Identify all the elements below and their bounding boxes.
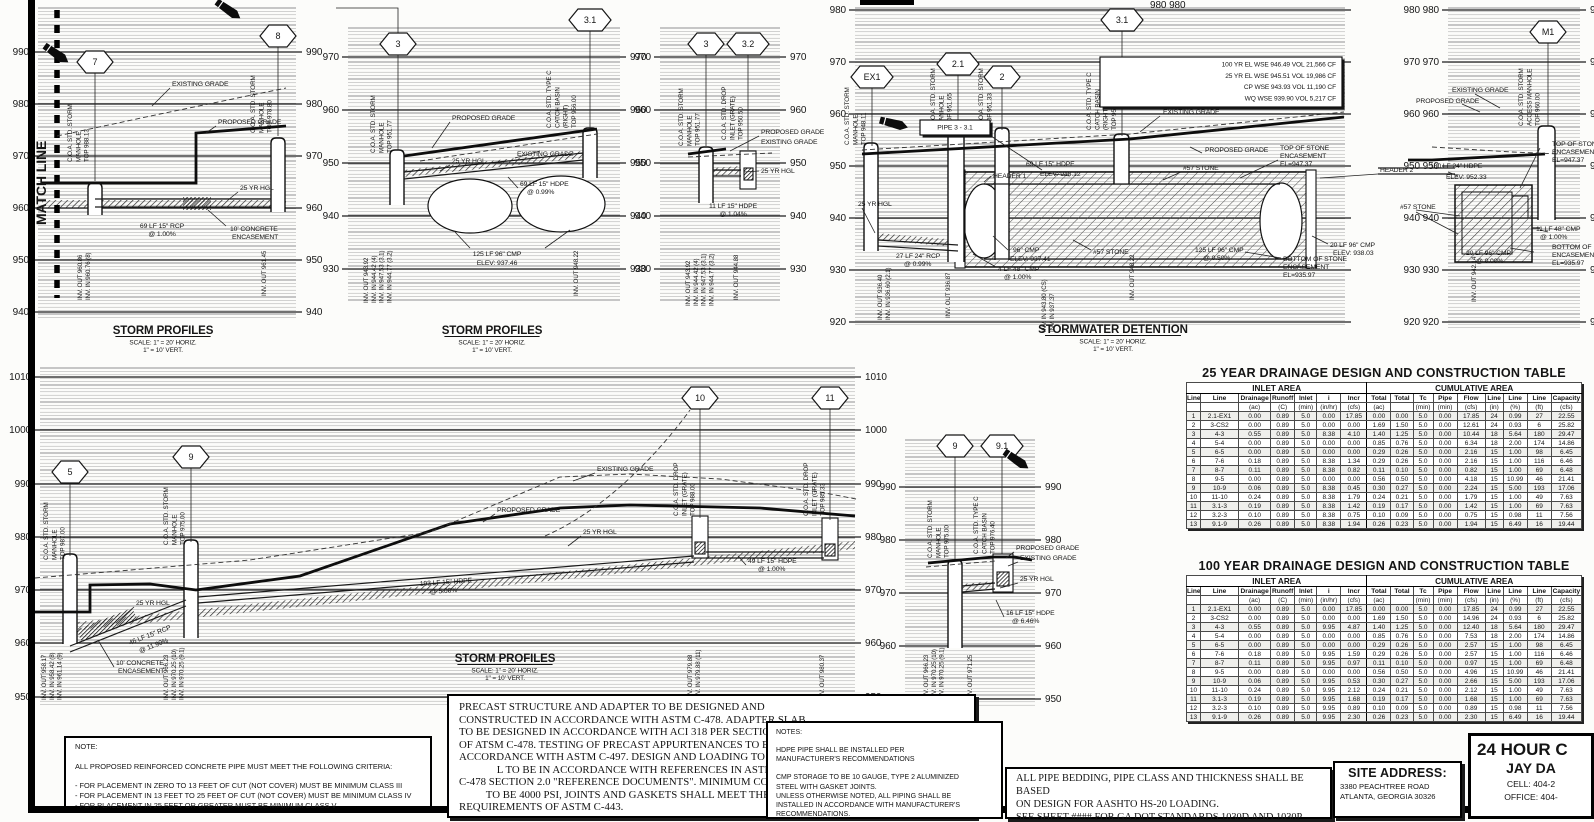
table-row: 78-70.110.895.08.380.820.110.105.00.000.… [1187,466,1582,475]
structure-barrel [390,150,404,205]
structure-callout: TOP 976.40 [990,521,997,554]
annotation-label: 96" CMP [1013,247,1040,254]
annotation-label: 25 YR HGL [858,201,892,208]
structure-bubble-label: 11 [825,393,834,403]
table-row: 89-50.000.895.00.000.000.560.505.00.004.… [1187,668,1582,677]
structure-callout: TOP 960.00 [1535,93,1542,126]
structure-bubble-label: 7 [93,57,98,67]
structure-callout: TOP 956.00 [571,95,578,128]
invert-label: INV. IN 944.42 (4) [693,258,700,306]
invert-label: INV. OUT 960.86 [77,254,84,300]
invert-label: INV. OUT 943.92 [363,257,370,303]
table-row: 123.2-30.100.895.08.380.750.100.095.00.0… [1187,511,1582,520]
site-address-title: SITE ADDRESS: [1340,766,1455,780]
annotation-label: PROPOSED GRADE [761,129,825,136]
elevation-label: 930 [830,265,847,276]
profile-scale-note: SCALE: 1" = 20' HORIZ. [471,668,538,675]
table-row: 34-30.550.895.09.954.871.401.255.00.0012… [1187,623,1582,632]
drainage-table-25yr-title: 25 YEAR DRAINAGE DESIGN AND CONSTRUCTION… [1186,366,1582,380]
elevation-label: 970 [306,151,323,162]
annotation-label: ELEV: 938.03 [1333,250,1374,257]
elevation-label: 940 [635,211,652,222]
elevation-label: 960 [13,203,30,214]
note-rcp-box: NOTE: ALL PROPOSED REINFORCED CONCRETE P… [64,736,432,808]
annotation-label: 180 LF 24" HDPE [1430,163,1483,170]
annotation-label: 25 YR HGL [761,168,795,175]
elevation-label: 970 [13,151,30,162]
invert-label: INV. OUT 948.22 [573,250,580,296]
annotation-label: @ 1.00% [1540,234,1567,241]
cmp-pipe-end [1260,183,1302,259]
annotation-label: 4 LF 48" CMP [998,266,1040,273]
annotation-label: BOTTOM OF [1552,244,1591,251]
invert-label: INV. IN 960.76 (8) [85,252,92,300]
invert-label: INV. OUT 948.22 [1129,254,1136,300]
profile-title: STORM PROFILES [442,325,543,337]
annotation-label: PROPOSED GRADE [497,507,561,514]
invert-label: INV. IN 947.53 (3.1) [379,251,386,303]
annotation-label: EXISTING GRADE [517,151,574,158]
annotation-label: EXISTING GRADE [1163,109,1220,116]
elevation-label: 960 [790,105,807,116]
elevation-label: 960 960 [1404,109,1440,120]
table-row: 910-90.060.895.09.950.530.300.275.00.002… [1187,677,1582,686]
structure-bubble-label: M1 [1542,27,1554,37]
structure-callout: C.O.A. STD. STORM [678,88,685,146]
table-row: 12.1-EX10.000.895.00.0017.850.000.005.00… [1187,412,1582,421]
structure-barrel [948,560,962,648]
drawing-line [878,246,958,251]
annotation-label: 25 YR HGL [1020,576,1054,583]
invert-label: INV. IN 944.42 (4) [371,255,378,303]
table-row: 56-50.000.895.00.000.000.290.265.00.002.… [1187,448,1582,457]
invert-label: INV. OUT 936.40 [877,274,884,320]
structure-callout: C.O.A. STD. DROP [673,463,680,516]
structure-callout: C.O.A. STD. STORM [844,87,851,145]
elevation-label: 980 980 [1404,5,1440,16]
elevation-label: 930 [635,264,652,275]
annotation-label: @ 0.99% [904,261,931,268]
structure-bubble-label: EX1 [864,72,881,82]
structure-callout: INLET (GRATE) [681,472,688,516]
structure-callout: TOP 987.00 [60,527,67,560]
hdpe-notes-text: NOTES: HDPE PIPE SHALL BE INSTALLED PER … [776,728,993,819]
profile-title: STORMWATER DETENTION [1038,324,1188,336]
table-row: 34-30.550.895.08.384.101.401.255.00.0010… [1187,430,1582,439]
structure-bubble-label: 3.1 [584,15,596,25]
elevation-label: 920 [1590,317,1594,328]
structure-callout: C.O.A. STD. STORM [370,95,377,153]
annotation-label: #57 STONE [1183,165,1219,172]
structure-callout: MANHOLE [75,132,82,162]
structure-bubble-label: 9 [953,441,958,451]
invert-label: INV. OUT 936.87 [945,272,952,318]
structure-callout: TOP 988.00 [690,483,697,516]
elevation-label: 950 [306,255,323,266]
structure-callout: (RIGHT) [563,105,570,128]
invert-label: INV. OUT 966.23 [163,654,170,700]
elevation-label: 960 [880,641,897,652]
table-row: 56-50.000.895.00.000.000.290.265.00.002.… [1187,641,1582,650]
table-header-row: LineLineDrainageRunoffInletiIncrTotalTot… [1187,394,1582,403]
structure-callout: C.O.A. STD. STORM [67,104,74,162]
annotation-label: ENCASEMENT [1552,149,1594,156]
contact-box: 24 HOUR C JAY DA CELL: 404-2 OFFICE: 404… [1468,733,1594,819]
elevation-label: 970 [880,588,897,599]
elevation-label: 930 [1590,265,1594,276]
callout-box-text: 100 YR EL WSE 946.49 VOL 21,566 CF [1222,62,1336,69]
structure-callout: MANHOLE [686,116,693,146]
structure-callout: (RIGHT) [1103,107,1110,130]
elevation-label: 980 [306,99,323,110]
elevation-label: 980 [13,99,30,110]
annotation-label: 16 LF 15" HDPE [1006,610,1055,617]
structure-callout: CATCH BASIN [554,87,561,128]
structure-callout: MANHOLE [171,515,178,545]
annotation-label: 11 LF 15" HDPE [709,203,758,210]
drainage-table-25yr-grid: INLET AREACUMULATIVE AREALineLineDrainag… [1186,382,1582,529]
structure-bubble-label: 3.2 [742,39,754,49]
invert-label: INV. OUT 961.45 [261,250,268,296]
annotation-label: EXISTING GRADE [1020,555,1077,562]
cmp-pipe-end [428,179,512,233]
table-row: 67-60.180.895.08.381.340.290.265.00.002.… [1187,457,1582,466]
invert-label: INV. IN 970.25 (9.1) [179,648,186,700]
elevation-label: 960 [1045,641,1062,652]
elevation-label: 940 [13,307,30,318]
elevation-label: 940 [323,211,340,222]
structure-callout: MANHOLE [51,530,58,560]
elevation-label: 960 [306,203,323,214]
elevation-label: 990 [880,482,897,493]
annotation-label: EXISTING GRADE [172,81,229,88]
annotation-label: 25 YR HGL [240,185,274,192]
elevation-label: 950 [830,161,847,172]
elevation-label: 960 [635,105,652,116]
structure-bubble-label: 3 [704,39,709,49]
structure-callout: C.O.A. STD. DROP [721,87,728,140]
annotation-label: #57 STONE [1400,204,1436,211]
table-row: 1011-100.240.895.09.952.120.240.215.00.0… [1187,686,1582,695]
annotation-label: EXISTING GRADE [761,139,818,146]
annotation-label: ENCASEMENT [1552,252,1594,259]
annotation-label: ELEV: 952.33 [1446,174,1487,181]
pipe-bedding-note-text: ALL PIPE BEDDING, PIPE CLASS AND THICKNE… [1016,773,1321,822]
invert-label: INV. IN 944.77 (3.2) [386,251,393,303]
elevation-label: 960 [323,105,340,116]
elevation-label: 1000 [865,425,887,436]
profile-scale-note: 1" = 10' VERT. [485,675,525,682]
elevation-label: 970 [1045,588,1062,599]
table-row: 23-CS20.000.895.00.000.001.691.505.00.00… [1187,421,1582,430]
contact-title: 24 HOUR C [1477,740,1585,760]
profile-p7: 9909909809809709709609609509509C.O.A. ST… [880,435,1080,705]
elevation-label: 940 [306,307,323,318]
note-rcp-text: NOTE: ALL PROPOSED REINFORCED CONCRETE P… [75,742,421,810]
elevation-label: 970 [830,57,847,68]
table-row: 23-CS20.000.895.00.000.001.691.505.00.00… [1187,614,1582,623]
annotation-label: ENCASEMENT [118,668,164,675]
elevation-label: 940 [790,211,807,222]
structure-callout: TOP 950.50 [738,107,745,140]
proposed-grade-line [1408,154,1545,160]
callout-box-text: PIPE 3 - 3.1 [937,125,973,132]
table-row: 910-90.060.895.08.380.450.300.275.00.002… [1187,484,1582,493]
annotation-label: 125 LF 96" CMP [473,251,522,258]
elevation-label: 950 [1045,694,1062,705]
drawing-line [996,600,1004,617]
annotation-label: PROPOSED GRADE [1416,98,1480,105]
annotation-label: PROPOSED GRADE [218,119,282,126]
structure-callout: TOP 975.00 [180,512,187,545]
structure-bubble-label: 3.1 [1116,15,1128,25]
structure-callout: C.O.A. STD. TYPE C [1086,72,1093,130]
drainage-table-100yr: 100 YEAR DRAINAGE DESIGN AND CONSTRUCTIO… [1186,559,1582,722]
invert-label: INV. IN 970.25 (10) [171,649,178,700]
annotation-label: EL=947.37 [1280,161,1312,168]
elevation-label: 930 [323,264,340,275]
site-address-box: SITE ADDRESS: 3380 PEACHTREE ROAD ATLANT… [1333,761,1462,818]
elevation-label: 940 [1590,213,1594,224]
invert-label: INV. OUT 958.17 [41,654,48,700]
drainage-table-25yr: 25 YEAR DRAINAGE DESIGN AND CONSTRUCTION… [1186,366,1582,529]
structure-callout: MANHOLE [258,103,265,133]
annotation-label: EXISTING GRADE [1452,87,1509,94]
profile-title: STORM PROFILES [113,325,214,337]
table-row: 12.1-EX10.000.895.00.0017.850.000.005.00… [1187,605,1582,614]
invert-label: INV. IN 979.88 (11) [695,650,702,700]
table-header-row: LineLineDrainageRunoffInletiIncrTotalTot… [1187,587,1582,596]
contact-phones: CELL: 404-2 OFFICE: 404- [1477,778,1585,804]
structure-bubble-label: 10 [695,393,705,403]
drawing-line [1462,104,1480,112]
site-address-text: 3380 PEACHTREE ROAD ATLANTA, GEORGIA 303… [1340,782,1455,803]
elevation-label: 940 [830,213,847,224]
annotation-label: 10' CONCRETE [230,226,278,233]
elevation-label: 970 [1590,57,1594,68]
structure-barrel [864,143,878,251]
drawing-line [432,122,450,148]
annotation-label: EL=935.97 [1552,260,1584,267]
profile-scale-note: 1" = 10' VERT. [472,347,512,354]
annotation-label: ELEV: 937.46 [477,260,518,267]
profile-scale-note: 1" = 10' VERT. [1093,346,1133,353]
drawing-line [1190,147,1202,153]
elevation-label: 980 [1590,5,1594,16]
table-row: 113.1-30.190.895.08.381.420.190.175.00.0… [1187,502,1582,511]
profile-p3: 9709709609609509509409409309303C.O.A. ST… [635,28,825,306]
annotation-label: PROPOSED GRADE [1016,545,1080,552]
table-row: 139.1-90.260.895.08.381.940.260.235.00.0… [1187,520,1582,529]
elevation-label: 920 [830,317,847,328]
elevation-label: 950 [1590,161,1594,172]
annotation-label: 25 YR HGL [136,600,170,607]
structure-callout: TOP 985.33 [820,483,827,516]
structure-callout: CATCH BASIN [981,513,988,554]
drainage-table-100yr-title: 100 YEAR DRAINAGE DESIGN AND CONSTRUCTIO… [1186,559,1582,573]
annotation-label: TOP OF STONE [1280,145,1330,152]
table-row: 113.1-30.190.895.09.951.680.190.175.00.0… [1187,695,1582,704]
sheet-border-top-segment [860,0,914,5]
annotation-label: ENCASEMENT [1280,153,1326,160]
structure-callout: TOP 951.77 [387,120,394,153]
structure-callout: C.O.A. STD. STORM [978,68,985,126]
invert-label: INV. IN 970.25 (10) [931,649,938,700]
elevation-label: 980 [830,5,847,16]
invert-label: INV. IN 961.14 (9) [57,652,64,700]
elevation-label: 920 920 [1404,317,1440,328]
annotation-label: 69 LF 15" RCP [140,223,185,230]
structure-callout: TOP 951.77 [695,113,702,146]
callout-box-text: WQ WSE 939.90 VOL 5,217 CF [1245,95,1336,102]
profile-p4: 980970960950940930920EX1C.O.A. STD. STOR… [830,0,1414,353]
invert-label: INV. IN 947.53 (3.1) [701,254,708,306]
annotation-label: BOTTOM OF STONE [1283,256,1348,263]
elevation-label: 970 [790,52,807,63]
drawing-line [336,8,398,33]
annotation-label: 25 YR HGL [452,158,486,165]
structure-bubble-label: 9 [189,452,194,462]
profile-p5: 980 980980970 970970960 960960950 950950… [1378,5,1594,328]
profile-scale-note: 1" = 10' VERT. [143,347,183,354]
structure-callout: TOP 948.11 [861,112,868,145]
elevation-label: 1010 [865,372,887,383]
annotation-label: 11 LF 48" CMP [1536,226,1581,233]
profile-title: STORM PROFILES [455,653,556,665]
table-row: 45-40.000.895.00.000.000.850.765.00.007.… [1187,632,1582,641]
elevation-label: 970 [635,52,652,63]
elevation-label: 990 [306,47,323,58]
profile-p1: 990990980980970970960960950950940940MATC… [13,0,323,354]
invert-label: INV. IN 970.25 (9.1) [939,648,946,700]
table-row: 45-40.000.895.00.000.000.850.765.00.006.… [1187,439,1582,448]
annotation-label: TOP OF STONE [1552,141,1594,148]
drainage-table-100yr-grid: INLET AREACUMULATIVE AREALineLineDrainag… [1186,575,1582,722]
invert-label: INV. IN 958.42 (8) [49,652,56,700]
structure-callout: TOP 988.13 [84,129,91,162]
annotation-label: ENCASEMENT [232,234,278,241]
annotation-label: 69 LF 15" HDPE [520,181,569,188]
table-row: 1011-100.240.895.08.381.790.240.215.00.0… [1187,493,1582,502]
structure-barrel [271,138,285,212]
structure-barrel [699,147,713,203]
structure-bubble-label: 2 [1000,72,1005,82]
annotation-label: @ 0.50% [1203,255,1230,262]
match-line-label: MATCH LINE [33,141,49,225]
drawing-line [208,210,226,226]
annotation-label: 27 LF 24" RCP [896,253,941,260]
elevation-label: 960 [1590,109,1594,120]
annotation-label: HEADER 1 [993,173,1027,180]
annotation-label: PROPOSED GRADE [452,115,516,122]
annotation-label: EXISTING GRADE [597,466,654,473]
drawing-line [1140,116,1160,132]
elevation-label: 990 [13,47,30,58]
invert-label: INV. OUT 942.14 [1471,256,1478,302]
structure-callout: INLET (GRATE) [729,96,736,140]
elevation-label: 970 970 [1404,57,1440,68]
annotation-label: @ 1.00% [148,231,175,238]
table-row: 89-50.000.895.00.000.000.560.505.00.004.… [1187,475,1582,484]
structure-callout: C.O.A. STD. STORM [930,68,937,126]
hdpe-notes-box: NOTES: HDPE PIPE SHALL BE INSTALLED PER … [766,721,1003,819]
annotation-label: @ 0.00% [1476,258,1503,265]
elevation-label: 950 [13,255,30,266]
structure-bubble-label: 2.1 [952,59,964,69]
invert-label: INV. IN 936.60 (2.1) [885,268,892,320]
annotation-label: @ 1.04% [719,211,746,218]
callout-box-text: 25 YR EL WSE 945.51 VOL 19,986 CF [1225,73,1336,80]
callout-box-text: CP WSE 943.93 VOL 11,190 CF [1244,84,1336,91]
elevation-label: 990 [1045,482,1062,493]
structure-callout: C.O.A. STD. STORM [163,487,170,545]
structure-callout: C.O.A. STD. DROP [803,463,810,516]
annotation-label: 125 LF 96" CMP [1195,247,1244,254]
structure-callout: C.O.A. STD. STORM [927,500,934,558]
annotation-label: EL=935.97 [1283,272,1315,279]
drawing-sheet: 990990980980970970960960950950940940MATC… [0,0,1594,822]
annotation-label: ENCASEMENT [1283,264,1329,271]
pencil-markup-icon [214,0,243,22]
drawing-line [508,177,518,188]
structure-barrel [1114,134,1129,184]
annotation-label: 25 YR HGL [583,529,617,536]
invert-label: INV. OUT 944.88 [733,254,740,300]
annotation-label: 69 LF 15" HDPE [1026,161,1075,168]
profile-scale-note: SCALE: 1" = 20' HORIZ. [129,340,196,347]
annotation-label: 20 LF 96" CMP [1466,250,1512,257]
table-row: 78-70.110.895.09.950.970.110.105.00.000.… [1187,659,1582,668]
structure-bubble-label: 3 [396,39,401,49]
structure-callout: ACCESS MANHOLE [1526,69,1533,126]
profile-scale-note: SCALE: 1" = 20' HORIZ. [458,340,525,347]
elevation-label: 950 [635,158,652,169]
elevation-label: 970 [323,52,340,63]
sheet-border-left [28,0,35,813]
profile-scale-note: SCALE: 1" = 20' HORIZ. [1079,339,1146,346]
pipe-bedding-note-box: ALL PIPE BEDDING, PIPE CLASS AND THICKNE… [1005,767,1332,819]
elevation-label: 950 [323,158,340,169]
invert-label: INV. IN 944.77 (3.2) [708,254,715,306]
profile-p2: 9709709609609509509409409309303C.O.A. ST… [323,8,647,354]
elevation-label: 980 [880,535,897,546]
structure-callout: C.O.A. STD. STORM [1518,68,1525,126]
structure-bubble-label: 8 [276,31,281,41]
structure-callout: C.O.A. STD. STORM [43,502,50,560]
structure-callout: MANHOLE [852,115,859,145]
invert-label: INV. OUT 943.92 [685,260,692,306]
structure-callout: C.O.A. STD. TYPE C [546,70,553,128]
existing-grade-line [545,410,690,536]
structure-barrel [63,554,77,644]
profile-p6: 1010101010001000990990980980970970960960… [9,368,887,705]
annotation-label: @ 1.00% [758,566,785,573]
contact-name: JAY DA [1477,760,1585,776]
annotation-label: PROPOSED GRADE [1205,147,1269,154]
structure-bubble-label: 5 [68,467,73,477]
elevation-label: 930 930 [1404,265,1440,276]
annotation-label: @ 6.46% [1012,618,1039,625]
structure-callout: C.O.A. STD. TYPE C [973,496,980,554]
annotation-label: #57 STONE [1093,249,1129,256]
annotation-label: @ 0.99% [527,189,554,196]
structure-callout: TOP 975.00 [944,525,951,558]
annotation-label: 10' CONCRETE [116,660,164,667]
table-row: 123.2-30.100.895.09.950.890.100.095.00.0… [1187,704,1582,713]
elevation-label: 930 [790,264,807,275]
annotation-label: 49 LF 15" HDPE [748,558,797,565]
annotation-label: ELEV: 948.12 [1040,171,1081,178]
